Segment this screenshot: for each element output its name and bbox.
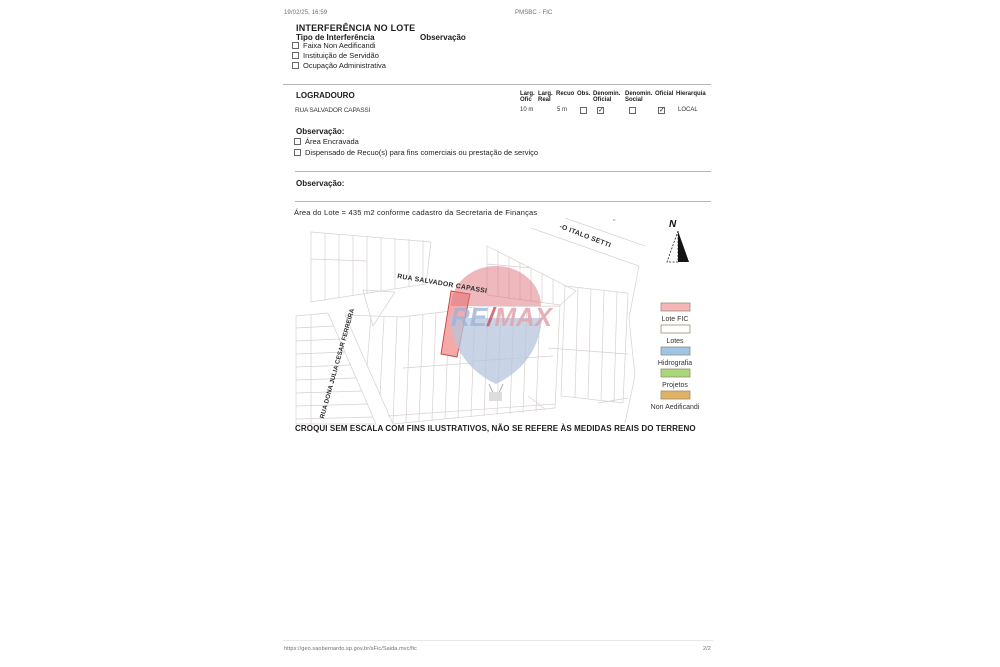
- croqui-map: RE/MAX RUA SALVADOR CAPASSI RUA DONA JUL…: [283, 218, 713, 425]
- legend-label-lotes: Lotes: [666, 338, 684, 345]
- legend-label-projetos: Projetos: [662, 382, 688, 389]
- legend-swatch-lote-fic: [661, 303, 690, 311]
- croqui-disclaimer: CROQUI SEM ESCALA COM FINS ILUSTRATIVOS,…: [295, 424, 696, 433]
- observacao1-heading: Observação:: [296, 127, 344, 136]
- option-instituicao-servidao: Instituição de Servidão: [292, 51, 379, 60]
- col-header-hierarquia: Hierarquia: [676, 91, 706, 97]
- legend-label-hidrografia: Hidrografia: [658, 360, 692, 367]
- col-header-larg-ofic: Larg.Ofic: [520, 91, 535, 103]
- print-doc-title: PMSBC - FIC: [515, 10, 552, 16]
- observacao-col-heading: Observação: [420, 33, 466, 42]
- checkbox-ocupacao-administrativa: [292, 62, 299, 69]
- logradouro-heading: LOGRADOURO: [296, 91, 355, 100]
- col-header-denomin-social: Denomin.Social: [625, 91, 652, 103]
- option-label: Instituição de Servidão: [303, 51, 379, 60]
- option-ocupacao-administrativa: Ocupação Administrativa: [292, 61, 386, 70]
- north-arrow: N: [667, 219, 689, 262]
- option-area-encravada: Área Encravada: [294, 137, 359, 146]
- cell-recuo: 5 m: [557, 107, 567, 113]
- legend-swatch-projetos: [661, 369, 690, 377]
- col-header-obs: Obs.: [577, 91, 590, 97]
- area-lote-note: Área do Lote = 435 m2 conforme cadastro …: [294, 208, 537, 217]
- legend-swatch-non-aedificandi: [661, 391, 690, 399]
- col-header-oficial: Oficial: [655, 91, 673, 97]
- logradouro-name: RUA SALVADOR CAPASSI: [295, 107, 370, 114]
- legend-swatch-lotes: [661, 325, 690, 333]
- legend-label-non-aedificandi: Non Aedificandi: [651, 404, 700, 411]
- map-corner-mark: ’’: [613, 220, 616, 226]
- print-preview-page: 19/02/25, 16:59 PMSBC - FIC INTERFERÊNCI…: [0, 0, 1000, 667]
- divider: [295, 171, 711, 172]
- section-title-interferencia: INTERFERÊNCIA NO LOTE: [296, 23, 415, 33]
- checkbox-dispensado-recuo: [294, 149, 301, 156]
- option-label: Área Encravada: [305, 137, 359, 146]
- balloon-basket: [489, 392, 502, 401]
- legend-swatch-hidrografia: [661, 347, 690, 355]
- observacao2-heading: Observação:: [296, 179, 344, 188]
- checkbox-oficial-checked: ✓: [658, 107, 665, 114]
- divider: [295, 201, 711, 202]
- option-faixa-non-aedificandi: Faixa Non Aedificandi: [292, 41, 376, 50]
- map-legend: Lote FIC Lotes Hidrografia Projetos Non …: [651, 303, 700, 411]
- col-header-recuo: Recuo: [556, 91, 574, 97]
- checkbox-area-encravada: [294, 138, 301, 145]
- col-header-denomin-oficial: Denomin.Oficial: [593, 91, 620, 103]
- cell-larg-ofic: 10 m: [520, 107, 533, 113]
- print-datetime: 19/02/25, 16:59: [284, 10, 327, 16]
- option-dispensado-recuo: Dispensado de Recuo(s) para fins comerci…: [294, 148, 538, 157]
- checkbox-denomin-social: [629, 107, 636, 114]
- cell-hierarquia: LOCAL: [678, 107, 698, 113]
- legend-label-lote-fic: Lote FIC: [662, 316, 689, 323]
- checkbox-obs: [580, 107, 587, 114]
- street-label-dona-julia: RUA DONA JULIA CESAR FERREIRA: [319, 308, 356, 420]
- option-label: Ocupação Administrativa: [303, 61, 386, 70]
- remax-watermark-text: RE/MAX: [451, 302, 554, 332]
- option-label: Faixa Non Aedificandi: [303, 41, 376, 50]
- col-header-larg-real: Larg.Real: [538, 91, 553, 103]
- north-label: N: [669, 219, 677, 230]
- checkbox-instituicao-servidao: [292, 52, 299, 59]
- print-footer-url: https://geo.saobernardo.sp.gov.br/sFic/S…: [284, 646, 417, 652]
- footer-divider: [283, 640, 713, 641]
- checkbox-faixa-non-aedificandi: [292, 42, 299, 49]
- divider: [283, 84, 711, 85]
- option-label: Dispensado de Recuo(s) para fins comerci…: [305, 148, 538, 157]
- street-label-italo-setti: -O ITALO SETTI: [558, 223, 612, 249]
- checkbox-denomin-oficial-checked: ✓: [597, 107, 604, 114]
- print-footer-page-number: 2/2: [703, 646, 711, 652]
